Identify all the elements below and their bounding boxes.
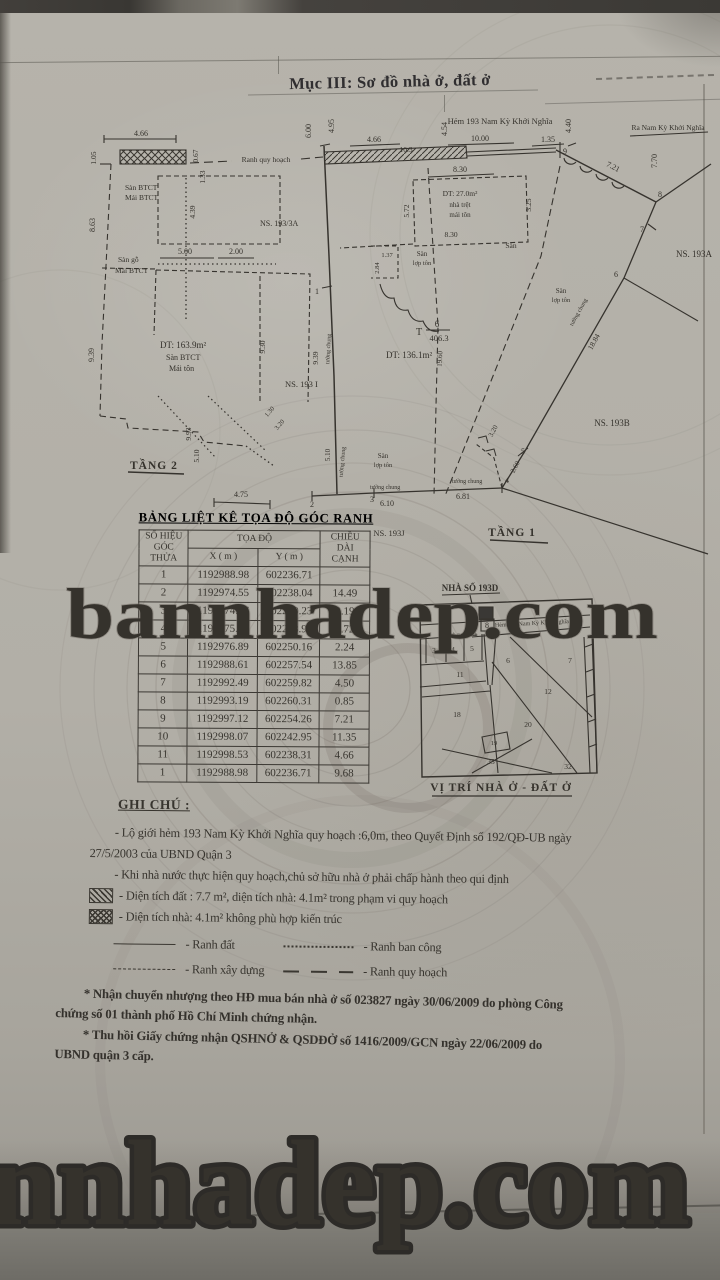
svg-text:6: 6 [435,319,440,329]
svg-text:5.10: 5.10 [324,448,332,461]
svg-text:4.66: 4.66 [367,135,381,144]
svg-text:NS. 193A: NS. 193A [676,249,713,259]
col-header-length: CHIỀU DÀICẠNH [320,531,370,567]
solid-line-icon [114,943,176,945]
table-row: 11192988.98602236.719.68 [138,764,369,783]
col-header-y: Y ( m ) [258,549,320,567]
map-caption: VỊ TRÍ NHÀ Ở - ĐẤT Ở [430,779,572,794]
svg-text:0.67: 0.67 [191,149,200,162]
corner-id: 1 [138,764,188,782]
table-row: 81192993.19602260.310.85 [138,692,369,711]
svg-text:3.20: 3.20 [274,418,287,431]
svg-text:1.33: 1.33 [198,170,207,183]
svg-text:12: 12 [544,687,552,696]
svg-text:NS. 193 I: NS. 193 I [285,379,318,389]
svg-text:nhà trệt: nhà trệt [449,201,470,209]
planning-boundary-label: Ranh quy hoạch [242,155,291,164]
note-item: - Lộ giới hẻm 193 Nam Kỳ Khởi Nghĩa quy … [89,822,594,870]
svg-text:tường chung: tường chung [452,479,482,485]
col-header-corner: SỐ HIỆUGÓC THỬA [139,530,189,566]
svg-text:10.00: 10.00 [471,134,489,143]
edge-length: 7.21 [319,711,369,729]
svg-text:DT: 136.1m²: DT: 136.1m² [386,350,433,360]
svg-text:18.84: 18.84 [586,332,602,351]
legend: - Ranh đất - Ranh ban công - Ranh xây dự… [113,933,637,985]
svg-text:T: T [416,327,422,338]
legend-item-land: - Ranh đất [113,933,283,956]
svg-text:7.21: 7.21 [605,160,622,174]
col-header-x: X ( m ) [188,548,258,566]
svg-text:9.39: 9.39 [311,351,320,364]
photo-top-edge [0,0,720,13]
svg-text:Sàn: Sàn [378,452,389,460]
svg-text:mái tôn: mái tôn [449,211,471,219]
svg-text:Mái BTCT: Mái BTCT [125,193,159,202]
svg-text:Sàn gỗ: Sàn gỗ [118,255,139,264]
svg-text:tường chung: tường chung [370,485,400,491]
svg-text:4.75: 4.75 [234,490,248,499]
y-coord: 602254.26 [257,711,319,729]
svg-text:lợp tôn: lợp tôn [413,260,432,267]
svg-text:4.40: 4.40 [564,119,573,133]
svg-text:4.66: 4.66 [134,129,148,138]
svg-text:2: 2 [310,500,314,509]
svg-text:8: 8 [658,190,662,199]
svg-text:2.84: 2.84 [374,262,381,274]
svg-text:4.39: 4.39 [188,205,197,218]
svg-text:tường chung: tường chung [325,334,333,365]
corner-id: 10 [138,728,188,746]
svg-text:6: 6 [614,270,618,279]
svg-text:9.39: 9.39 [87,348,96,362]
x-coord: 1192993.19 [188,692,258,710]
svg-text:1: 1 [315,287,319,296]
svg-text:1.30: 1.30 [264,405,277,418]
svg-text:tường chung: tường chung [569,298,589,327]
y-coord: 602260.31 [257,693,319,711]
scanned-document-page: Mục III: Sơ đồ nhà ở, đất ở [0,0,720,1280]
svg-text:6.10: 6.10 [380,499,394,508]
footer-notes: * Nhận chuyển nhượng theo HĐ mua bán nhà… [54,984,576,1078]
svg-text:NS. 193B: NS. 193B [594,418,630,428]
svg-text:9.30: 9.30 [258,340,267,353]
x-coord: 1192998.53 [187,746,257,764]
street-label: Hẻm 193 Nam Kỳ Khởi Nghĩa [448,116,553,126]
y-coord: 602242.95 [257,729,319,747]
tick-mark [278,56,279,74]
svg-text:1.05: 1.05 [89,151,98,164]
cross-hatch-swatch-icon [89,909,113,924]
svg-text:DT: 163.9m²: DT: 163.9m² [160,340,207,350]
svg-text:6.00: 6.00 [304,124,313,138]
long-dash-line-icon [283,970,353,973]
svg-text:5.72: 5.72 [402,204,411,217]
legend-label: - Ranh quy hoạch [363,961,447,983]
corner-id: 7 [138,674,188,692]
edge-length: 11.35 [319,729,369,747]
floor-plan-drawing: Hẻm 193 Nam Kỳ Khởi Nghĩa Ra Nam Kỳ Khởi… [8,106,715,568]
note-item-text: - Diện tích nhà: 4.1m² không phù hợp kiế… [119,906,342,930]
corner-id: 8 [138,692,188,710]
corner-point-markers: 1 2 3 4 5 6 7 8 9 [310,147,662,509]
svg-text:4.95: 4.95 [327,119,336,133]
svg-text:18: 18 [453,710,461,719]
svg-text:Mái tôn: Mái tôn [169,364,194,373]
svg-text:tường chung: tường chung [339,447,348,478]
y-coord: 602259.82 [258,675,320,693]
edge-length: 4.66 [319,747,369,765]
svg-text:5.10: 5.10 [192,449,201,462]
svg-text:8.30: 8.30 [444,230,457,239]
table-row: 101192998.07602242.9511.35 [138,728,369,747]
svg-text:19: 19 [491,740,498,747]
bottom-watermark: nnhadep.com [0,1116,720,1266]
notes-heading: GHI CHÚ : [118,797,190,814]
svg-text:3.20: 3.20 [487,423,500,438]
notes-section: - Lộ giới hẻm 193 Nam Kỳ Khởi Nghĩa quy … [88,822,638,986]
svg-text:5: 5 [521,447,525,456]
legend-item-balcony: - Ranh ban công [283,935,458,958]
svg-text:Sàn BTCT: Sàn BTCT [166,353,201,362]
table-row: 71192992.49602259.824.50 [138,674,369,693]
svg-text:8.63: 8.63 [88,218,97,232]
svg-text:20: 20 [524,720,532,729]
middle-watermark: bannhadep.com [52,574,677,666]
svg-text:9: 9 [563,147,567,156]
svg-text:32: 32 [564,762,572,771]
svg-text:lợp tôn: lợp tôn [374,462,393,469]
svg-text:10.3: 10.3 [399,145,412,154]
plan-labels: Sàn BTCT Mái BTCT NS. 193/3A Sàn gỗ Mái … [115,183,712,539]
svg-text:6.81: 6.81 [456,492,470,501]
svg-text:Mái BTCT: Mái BTCT [115,266,149,275]
svg-text:TẦNG 2: TẦNG 2 [130,457,178,472]
svg-text:5.00: 5.00 [178,247,192,256]
x-coord: 1192998.07 [187,728,257,746]
svg-text:33: 33 [487,757,495,766]
street-exit-label: Ra Nam Kỳ Khởi Nghĩa [631,123,705,132]
table-row: 91192997.12602254.267.21 [138,710,369,729]
svg-text:2.00: 2.00 [229,247,243,256]
dashed-line-icon [113,968,175,970]
svg-text:3.25: 3.25 [524,198,533,211]
svg-text:Sàn: Sàn [556,287,567,295]
table-row: 111192998.53602238.314.66 [138,746,369,765]
svg-text:DT: 27.0m²: DT: 27.0m² [443,189,479,198]
legend-label: - Ranh ban công [363,936,441,958]
dotted-line-icon [283,945,353,948]
edge-length: 4.50 [320,675,370,693]
edge-length: 0.85 [319,693,369,711]
svg-text:7.70: 7.70 [650,154,659,168]
svg-text:3: 3 [370,495,374,504]
svg-text:Sàn BTCT: Sàn BTCT [125,183,158,192]
bottom-watermark-text: nnhadep.com [0,1116,690,1251]
middle-watermark-text: bannhadep.com [66,574,658,654]
svg-text:9.93: 9.93 [184,427,193,440]
svg-text:NS. 193/3A: NS. 193/3A [260,219,298,228]
edge-length: 9.68 [319,765,369,783]
svg-text:Sàn: Sàn [505,241,517,250]
svg-text:8.30: 8.30 [453,165,467,174]
legend-label: - Ranh đất [185,934,234,956]
svg-text:2.60: 2.60 [509,459,522,474]
x-coord: 1192992.49 [188,674,258,692]
coordinate-table-title: BẢNG LIỆT KÊ TỌA ĐỘ GÓC RANH [139,510,373,526]
svg-text:19.60: 19.60 [436,350,445,367]
dimension-labels: 4.66 1.05 0.67 1.33 6.00 4.95 4.66 10.3 … [87,119,659,508]
svg-text:1.37: 1.37 [381,252,393,259]
svg-text:11: 11 [456,670,463,679]
svg-text:4: 4 [505,476,509,485]
legend-item-planning: - Ranh quy hoạch [283,960,458,983]
col-header-coord: TỌA ĐỘ [188,530,320,549]
svg-text:7: 7 [640,225,644,234]
diagonal-hatch-swatch-icon [89,888,113,903]
corner-id: 9 [138,710,188,728]
svg-text:1.35: 1.35 [541,135,555,144]
svg-text:406.3: 406.3 [429,333,448,343]
svg-text:lợp tôn: lợp tôn [552,297,571,304]
svg-text:Sàn: Sàn [417,250,428,258]
svg-text:4.54: 4.54 [440,122,449,136]
legend-item-building: - Ranh xây dựng [113,958,283,981]
y-coord: 602236.71 [257,765,319,783]
y-coord: 602238.31 [257,747,319,765]
legend-label: - Ranh xây dựng [185,959,264,981]
corner-id: 11 [138,746,188,764]
svg-text:TẦNG 1: TẦNG 1 [488,524,536,539]
x-coord: 1192988.98 [187,764,257,782]
svg-text:NS. 193J: NS. 193J [373,528,405,538]
x-coord: 1192997.12 [188,710,258,728]
